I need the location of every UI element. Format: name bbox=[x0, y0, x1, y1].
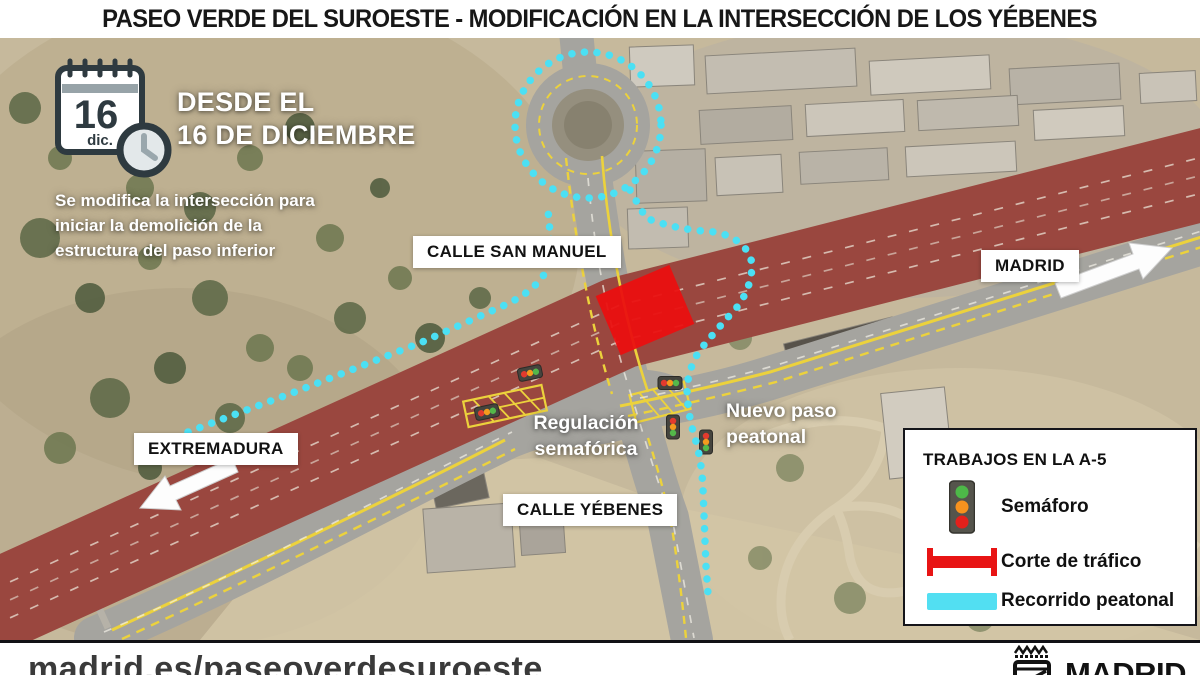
legend-row-semaforo: Semáforo bbox=[923, 480, 1195, 534]
date-heading: DESDE EL 16 DE DICIEMBRE bbox=[177, 86, 416, 152]
label-calle-san-manuel: CALLE SAN MANUEL bbox=[413, 236, 621, 268]
calendar-month: dic. bbox=[87, 132, 113, 149]
legend-label-corte: Corte de tráfico bbox=[1001, 551, 1141, 573]
clock-icon bbox=[120, 126, 168, 174]
road-closure-icon bbox=[923, 548, 1001, 576]
date-heading-line1: DESDE EL bbox=[177, 86, 416, 119]
header-bar: PASEO VERDE DEL SUROESTE - MODIFICACIÓN … bbox=[0, 0, 1200, 38]
footer-bar: madrid.es/paseoverdesuroeste MADRID bbox=[0, 640, 1200, 675]
infographic-page: PASEO VERDE DEL SUROESTE - MODIFICACIÓN … bbox=[0, 0, 1200, 675]
note-nuevo-paso-peatonal: Nuevo paso peatonal bbox=[726, 398, 844, 450]
page-title: PASEO VERDE DEL SUROESTE - MODIFICACIÓN … bbox=[103, 5, 1098, 34]
label-madrid-direction: MADRID bbox=[981, 250, 1079, 282]
legend-box: TRABAJOS EN LA A-5 Semáforo bbox=[903, 428, 1197, 626]
label-calle-yebenes: CALLE YÉBENES bbox=[503, 494, 677, 526]
madrid-crest-icon bbox=[1013, 645, 1055, 675]
legend-label-semaforo: Semáforo bbox=[1001, 496, 1089, 518]
madrid-city-logo: MADRID bbox=[1013, 645, 1186, 675]
calendar-date-icon: 16 dic. bbox=[52, 58, 192, 183]
legend-row-corte: Corte de tráfico bbox=[923, 548, 1195, 576]
roundabout bbox=[539, 76, 637, 174]
traffic-light-icon bbox=[923, 480, 1001, 534]
footer-logo-text: MADRID bbox=[1065, 656, 1186, 675]
legend-title: TRABAJOS EN LA A-5 bbox=[923, 450, 1195, 470]
pedestrian-route-icon bbox=[923, 593, 1001, 610]
footer-url: madrid.es/paseoverdesuroeste bbox=[28, 650, 543, 675]
label-extremadura-direction: EXTREMADURA bbox=[134, 433, 298, 465]
date-heading-line2: 16 DE DICIEMBRE bbox=[177, 119, 416, 152]
works-description: Se modifica la intersección para iniciar… bbox=[55, 188, 323, 263]
calendar-day: 16 bbox=[74, 93, 119, 137]
note-regulacion-semaforica: Regulación semafórica bbox=[508, 410, 664, 462]
legend-row-recorrido: Recorrido peatonal bbox=[923, 590, 1195, 612]
legend-label-recorrido: Recorrido peatonal bbox=[1001, 590, 1174, 612]
